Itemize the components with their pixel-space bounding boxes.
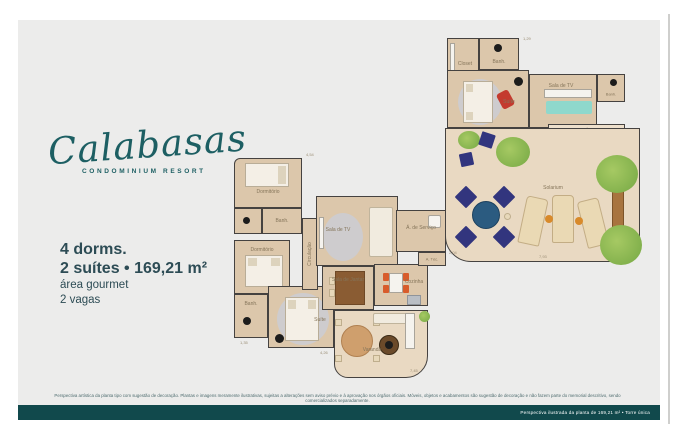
label-banheiro-superior-1: Banh.	[492, 59, 505, 65]
footer-bar: Perspectiva ilustrada da planta de 169,2…	[18, 405, 660, 420]
dimension-label: 4,54	[306, 152, 314, 157]
spec-dorms: 4 dorms.	[60, 240, 207, 259]
room-servico	[396, 210, 446, 252]
brand-logo: Calabasas CONDOMINIUM RESORT	[48, 126, 228, 175]
label-sala-jantar: Sala de Jantar	[332, 277, 364, 283]
dimension-label: 4,26	[320, 350, 328, 355]
label-cozinha: Cozinha	[405, 279, 423, 285]
room-sala-jantar	[322, 266, 374, 310]
label-circulacao: Circulação	[307, 242, 313, 266]
brochure-slide: Calabasas CONDOMINIUM RESORT 4 dorms. 2 …	[0, 0, 675, 435]
label-sala-tv-superior: Sala de TV	[549, 83, 574, 89]
spec-suites-area: 2 suítes • 169,21 m²	[60, 259, 207, 278]
label-servico: Á. de Serviço	[406, 225, 436, 231]
label-closet: Closet	[458, 61, 472, 67]
room-wc-1	[234, 208, 262, 234]
label-suite: Suíte	[314, 317, 326, 323]
room-solarium	[445, 128, 640, 262]
room-suite-superior	[447, 70, 529, 128]
floorplan-ground: Dormitório Banh. Dormitório Banh. Suíte	[232, 152, 450, 380]
dimension-label: 1,29	[523, 36, 531, 41]
label-varanda: Varanda	[363, 347, 382, 353]
room-banheiro-superior-2	[597, 74, 625, 102]
room-dormitorio-1	[234, 158, 302, 208]
label-suite-superior: Suíte	[503, 99, 515, 105]
legal-disclaimer: Perspectiva artística da planta tipo com…	[45, 393, 630, 403]
brand-name: Calabasas	[47, 120, 229, 172]
label-solarium: Solarium	[543, 185, 563, 191]
room-banheiro-superior-1	[479, 38, 519, 70]
dimension-label: 7,45	[410, 368, 418, 373]
spec-gourmet: área gourmet	[60, 278, 207, 293]
dimension-label: 7,93	[539, 254, 547, 259]
floorplan-upper: Banh. Closet Suíte Sala de TV Banh.	[443, 36, 645, 264]
label-banheiro-2: Banh.	[244, 301, 257, 307]
label-dormitorio-1: Dormitório	[256, 189, 279, 195]
dimension-label: 2,04	[449, 250, 457, 255]
page-edge-shadow	[668, 14, 670, 424]
room-cozinha	[374, 264, 428, 306]
footer-caption: Perspectiva ilustrada da planta de 169,2…	[520, 410, 650, 415]
label-area-tecnica: A. Téc.	[426, 257, 439, 262]
label-banheiro-superior-2: Banh.	[606, 92, 616, 97]
spec-parking: 2 vagas	[60, 293, 207, 308]
label-banheiro-1: Banh.	[275, 218, 288, 224]
label-sala-tv: Sala de TV	[326, 227, 351, 233]
label-dormitorio-2: Dormitório	[250, 247, 273, 253]
dimension-label: 1,35	[240, 340, 248, 345]
unit-specs: 4 dorms. 2 suítes • 169,21 m² área gourm…	[60, 240, 207, 308]
